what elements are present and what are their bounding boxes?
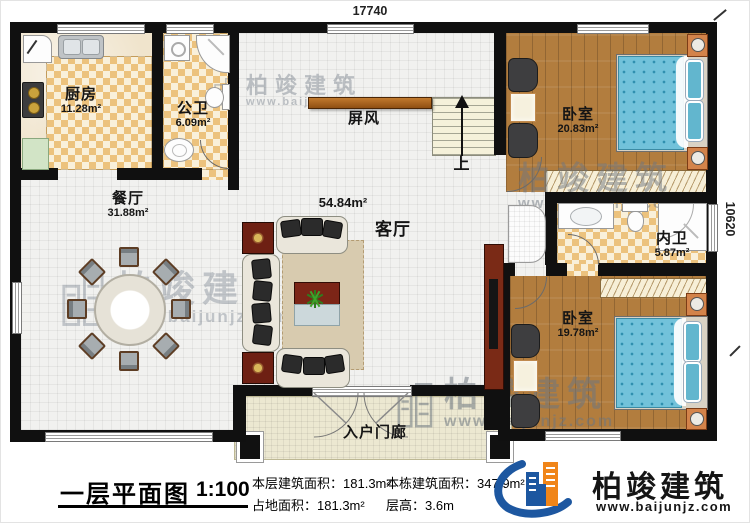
room-label-ensuite: 内卫5.87m² xyxy=(644,230,700,260)
armchair xyxy=(508,58,538,92)
wall xyxy=(410,385,488,396)
wall xyxy=(546,263,567,276)
watermark-name: 柏竣建筑 xyxy=(518,162,679,196)
wall xyxy=(545,192,706,203)
sofa-cushion xyxy=(280,219,302,239)
nightstand xyxy=(687,34,708,57)
company-logo-icon xyxy=(488,456,588,518)
dining-chair xyxy=(171,299,191,319)
sofa-cushion xyxy=(251,302,272,324)
window xyxy=(45,432,213,442)
room-label-kitchen: 厨房11.28m² xyxy=(54,86,108,116)
floor-plan-page: 柏竣建筑 www.baijunjz.com 柏竣建筑 www.baijunjz.… xyxy=(0,0,750,523)
screen-partition xyxy=(308,97,432,109)
wall xyxy=(545,203,557,265)
window xyxy=(327,24,414,34)
kitchen-cabinet xyxy=(22,138,49,170)
title-underline xyxy=(58,505,248,508)
dimension-top: 17740 xyxy=(310,4,430,18)
dimension-right: 10620 xyxy=(723,189,737,249)
fridge xyxy=(23,35,52,63)
sofa-cushion xyxy=(301,218,323,236)
sofa-cushion xyxy=(322,219,344,239)
hall-cabinet xyxy=(508,205,546,263)
wall xyxy=(117,168,202,180)
pillow xyxy=(686,60,703,100)
wall xyxy=(233,396,246,442)
window xyxy=(57,24,145,34)
sofa-cushion xyxy=(251,258,272,280)
dining-chair xyxy=(67,299,87,319)
stairs-up-label: 上 xyxy=(450,156,474,174)
ensuite-threshold xyxy=(567,264,598,276)
room-label-screen: 屏风 xyxy=(334,110,394,127)
side-table xyxy=(242,352,274,384)
dining-table xyxy=(94,274,166,346)
corner-tick xyxy=(713,9,727,21)
pillow xyxy=(684,362,701,402)
armchair xyxy=(511,394,540,428)
sofa-cushion xyxy=(252,324,273,346)
plan-title: 一层平面图 xyxy=(60,474,190,509)
up-arrow-icon xyxy=(455,95,469,108)
armchair xyxy=(511,324,540,358)
room-label-dining: 餐厅31.88m² xyxy=(98,190,158,220)
room-label-porch: 入户门廊 xyxy=(330,424,420,441)
window xyxy=(166,24,214,34)
side-table xyxy=(242,222,274,254)
plan-scale: 1:100 xyxy=(196,478,250,502)
stat-floor-area: 本层建筑面积：181.3m² xyxy=(252,473,391,492)
wall xyxy=(484,385,510,430)
sofa-cushion xyxy=(324,354,346,375)
wall xyxy=(152,33,163,168)
room-label-living-area: 54.84m² xyxy=(310,196,376,211)
wall xyxy=(494,33,506,155)
tv-cabinet xyxy=(484,244,504,390)
nightstand xyxy=(687,147,708,170)
pillow xyxy=(686,101,703,141)
stat-floor-height: 层高：3.6m xyxy=(386,495,454,514)
corner-tick xyxy=(729,345,740,356)
sofa-cushion xyxy=(281,354,303,375)
stat-footprint-area: 占地面积：181.3m² xyxy=(252,495,365,514)
window xyxy=(12,282,22,334)
wall xyxy=(10,22,21,442)
window xyxy=(577,24,649,34)
dining-chair xyxy=(119,351,139,371)
plant xyxy=(306,290,324,308)
public-bath-threshold xyxy=(202,170,228,180)
room-label-public-bath: 公卫6.09m² xyxy=(168,100,218,130)
side-table xyxy=(510,93,536,122)
wall xyxy=(598,263,706,276)
bathroom-sink xyxy=(164,138,194,162)
toilet xyxy=(627,211,644,232)
stove xyxy=(22,82,44,118)
watermark-name: 柏竣建筑 xyxy=(246,74,373,97)
side-table xyxy=(513,360,538,392)
window xyxy=(708,204,718,252)
room-label-living: 客厅 xyxy=(368,220,418,240)
bed-mattress xyxy=(618,56,684,150)
nightstand xyxy=(686,408,707,430)
nightstand xyxy=(686,293,707,316)
pillow xyxy=(684,322,701,362)
kitchen-sink xyxy=(58,35,104,59)
sofa-cushion xyxy=(303,357,325,375)
sofa-cushion xyxy=(252,280,273,302)
armchair xyxy=(508,123,538,158)
stairs-direction-line xyxy=(461,104,463,156)
washing-machine xyxy=(164,35,190,61)
dining-chair xyxy=(119,247,139,267)
room-label-bedroom-top: 卧室20.83m² xyxy=(548,106,608,136)
bed-mattress xyxy=(616,318,682,408)
window xyxy=(545,431,621,441)
room-label-bedroom-bottom: 卧室19.78m² xyxy=(548,310,608,340)
vanity-counter xyxy=(558,203,614,229)
company-logo-website: www.baijunjz.com xyxy=(596,499,732,514)
